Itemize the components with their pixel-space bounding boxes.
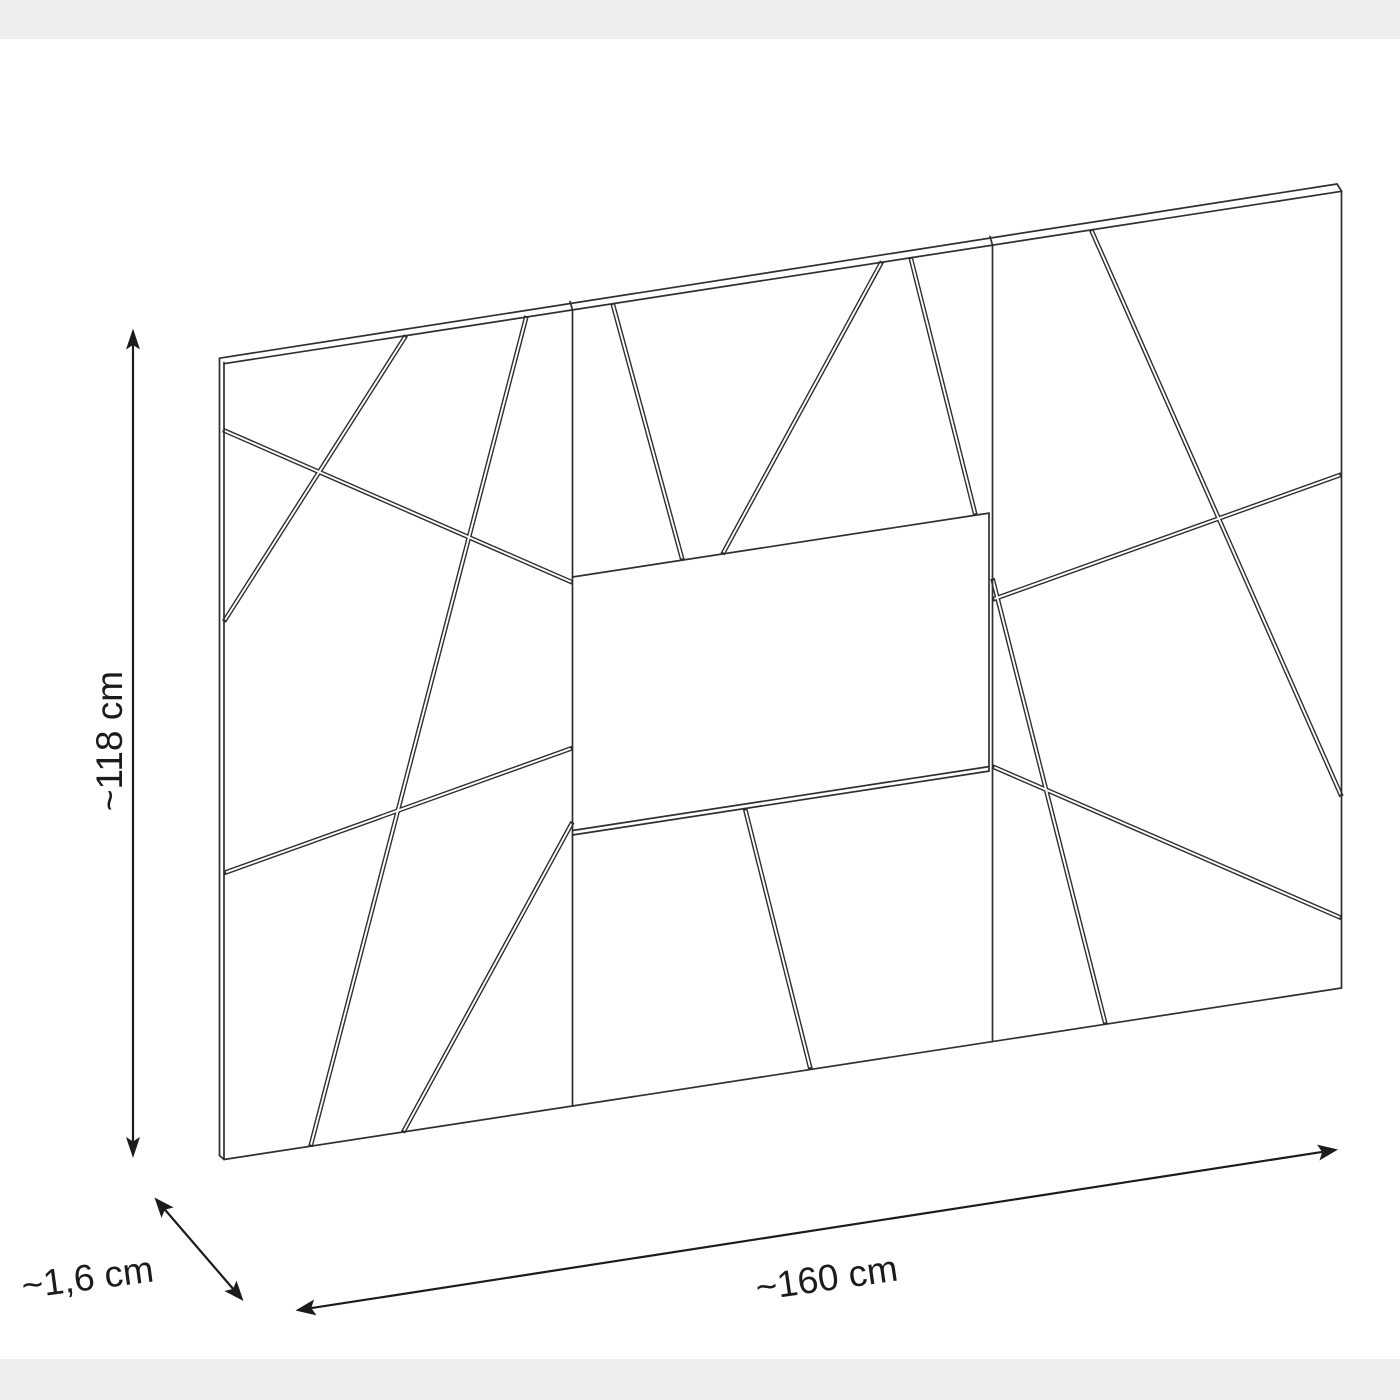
svg-text:~118 cm: ~118 cm (89, 671, 130, 811)
